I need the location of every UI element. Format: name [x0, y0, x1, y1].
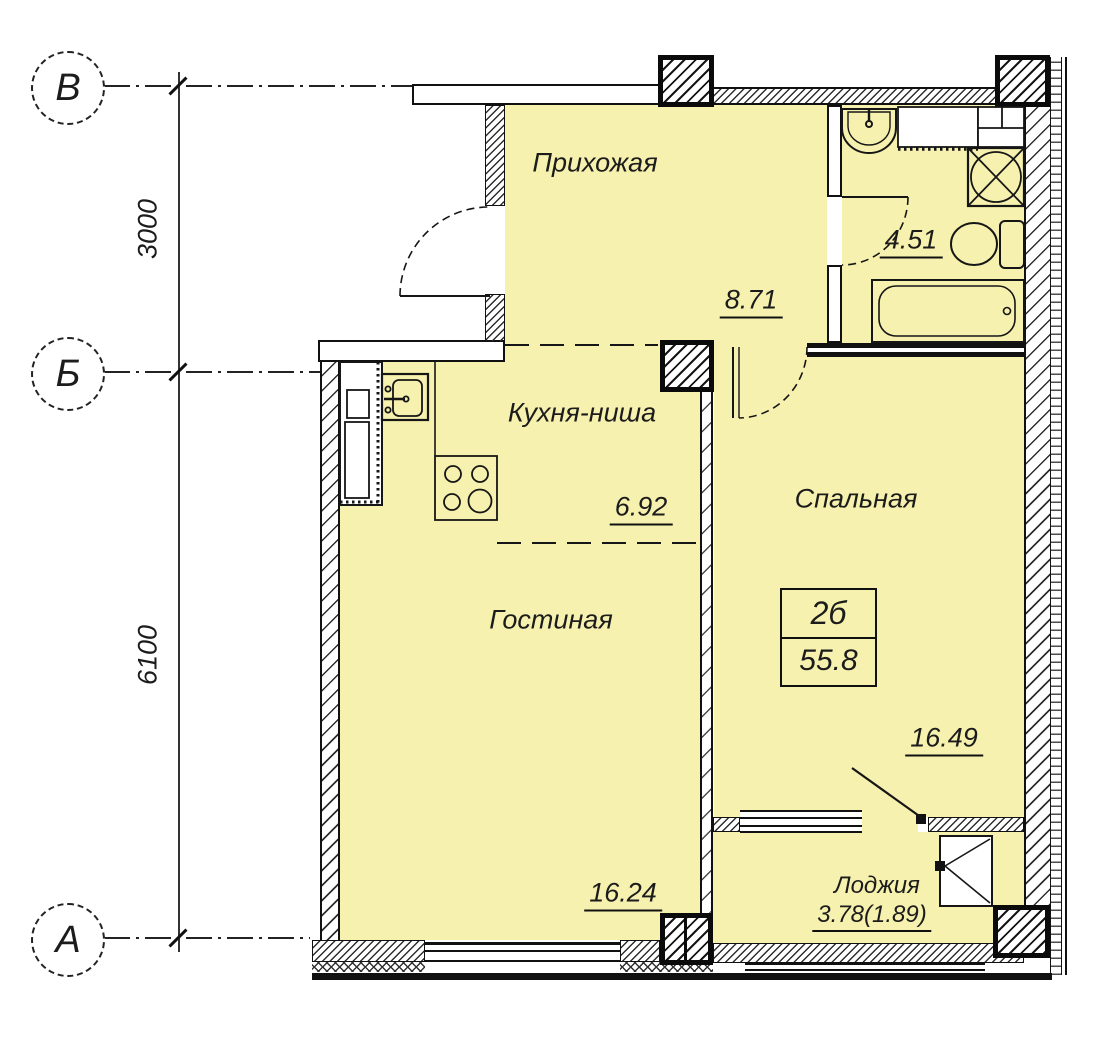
axis-label-a: А	[55, 919, 80, 962]
bathtub-icon	[872, 280, 1024, 342]
entrance-door	[400, 207, 490, 296]
label-hallway: Прихожая	[532, 148, 657, 179]
label-bedroom: Спальная	[795, 484, 918, 515]
apartment-type: 2б	[782, 590, 875, 639]
toilet-icon	[951, 221, 1024, 268]
label-kitchen-niche: Кухня-ниша	[508, 398, 656, 429]
ventilation-shaft-icon	[340, 362, 382, 505]
dimension-3000: 3000	[133, 199, 164, 259]
shower-icon	[968, 148, 1024, 206]
axis-circle-a: А	[31, 903, 105, 977]
loggia-window-icon	[935, 836, 992, 906]
washbasin-icon	[842, 109, 896, 153]
washing-machine-icon	[898, 107, 1024, 149]
kitchen-sink-icon	[382, 374, 428, 420]
area-bedroom: 16.49	[905, 723, 983, 757]
area-living-room: 16.24	[584, 878, 662, 912]
axis-circle-v: В	[31, 51, 105, 125]
label-loggia: Лоджия	[834, 872, 920, 900]
apartment-total-area: 55.8	[782, 639, 875, 685]
axis-label-v: В	[55, 67, 80, 110]
entrance-door-arc	[400, 207, 488, 296]
bedroom-door	[733, 347, 807, 418]
apartment-info-box: 2б 55.8	[780, 588, 877, 687]
balcony-door-swing	[852, 768, 922, 818]
area-hallway: 8.71	[720, 285, 783, 319]
label-living-room: Гостиная	[489, 605, 613, 636]
axis-circle-b: Б	[31, 337, 105, 411]
bedroom-door-arc	[739, 347, 807, 418]
stove-icon	[435, 456, 497, 520]
area-kitchen-niche: 6.92	[610, 492, 673, 526]
dimension-6100: 6100	[133, 625, 164, 685]
axis-label-b: Б	[56, 353, 81, 396]
area-loggia: 3.78(1.89)	[812, 901, 931, 932]
area-bathroom: 4.51	[880, 225, 943, 259]
floor-plan: В Б А 3000 6100	[0, 0, 1115, 1050]
